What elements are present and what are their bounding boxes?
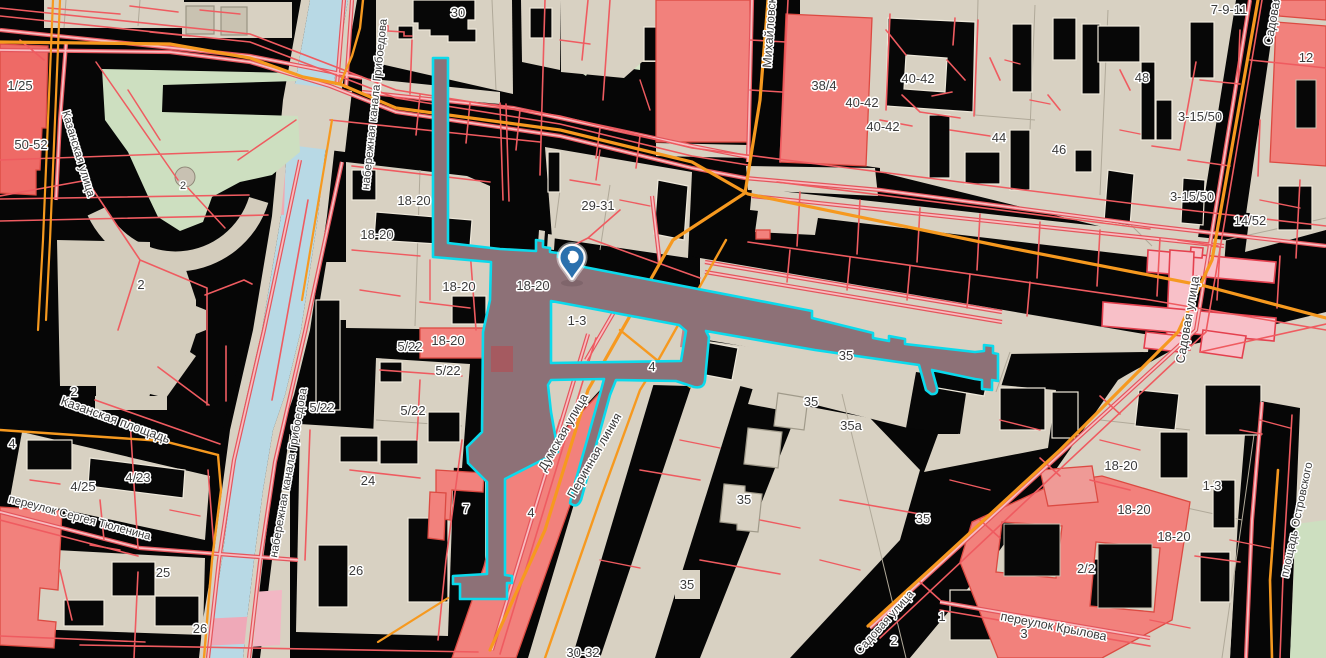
svg-text:12: 12: [1299, 50, 1313, 65]
svg-text:2/2: 2/2: [1077, 561, 1095, 576]
svg-text:4: 4: [648, 359, 655, 374]
svg-text:35: 35: [680, 577, 694, 592]
svg-text:30: 30: [451, 5, 465, 20]
svg-text:18-20: 18-20: [516, 278, 549, 293]
svg-text:35а: 35а: [840, 418, 862, 433]
svg-text:4: 4: [527, 505, 534, 520]
svg-text:29-31: 29-31: [581, 198, 614, 213]
svg-text:3-15/50: 3-15/50: [1178, 109, 1222, 124]
svg-text:1/25: 1/25: [7, 78, 32, 93]
svg-text:40-42: 40-42: [866, 119, 899, 134]
svg-text:4/25: 4/25: [70, 479, 95, 494]
svg-text:2: 2: [890, 633, 897, 648]
svg-text:38/4: 38/4: [811, 78, 836, 93]
svg-text:18-20: 18-20: [1117, 502, 1150, 517]
svg-text:4: 4: [8, 436, 15, 451]
svg-text:18-20: 18-20: [431, 333, 464, 348]
svg-text:7-9-11: 7-9-11: [1211, 2, 1248, 17]
svg-text:40-42: 40-42: [901, 71, 934, 86]
svg-text:2: 2: [137, 277, 144, 292]
svg-text:5/22: 5/22: [309, 400, 334, 415]
svg-text:48: 48: [1135, 70, 1149, 85]
svg-text:1-3: 1-3: [568, 313, 587, 328]
svg-text:18-20: 18-20: [397, 193, 430, 208]
svg-text:40-42: 40-42: [845, 95, 878, 110]
svg-text:26: 26: [193, 621, 207, 636]
svg-text:18-20: 18-20: [360, 227, 393, 242]
svg-text:35: 35: [737, 492, 751, 507]
svg-text:46: 46: [1052, 142, 1066, 157]
svg-text:3-15/50: 3-15/50: [1170, 189, 1214, 204]
svg-text:35: 35: [839, 348, 853, 363]
svg-text:14/52: 14/52: [1234, 213, 1267, 228]
svg-text:1: 1: [938, 609, 945, 624]
svg-text:3: 3: [1020, 626, 1027, 641]
svg-text:5/22: 5/22: [435, 363, 460, 378]
svg-text:50-52: 50-52: [14, 137, 47, 152]
svg-text:5/22: 5/22: [400, 403, 425, 418]
svg-text:4/23: 4/23: [125, 470, 150, 485]
svg-text:25: 25: [156, 565, 170, 580]
svg-text:26: 26: [349, 563, 363, 578]
svg-text:24: 24: [361, 473, 375, 488]
svg-text:30-32: 30-32: [566, 645, 599, 658]
svg-text:7: 7: [462, 501, 469, 516]
svg-text:44: 44: [992, 130, 1006, 145]
svg-text:1-3: 1-3: [1203, 478, 1222, 493]
svg-text:18-20: 18-20: [442, 279, 475, 294]
svg-text:5/22: 5/22: [397, 339, 422, 354]
svg-text:2: 2: [180, 180, 186, 192]
svg-text:18-20: 18-20: [1157, 529, 1190, 544]
svg-text:18-20: 18-20: [1104, 458, 1137, 473]
svg-text:35: 35: [804, 394, 818, 409]
svg-text:35: 35: [916, 511, 930, 526]
